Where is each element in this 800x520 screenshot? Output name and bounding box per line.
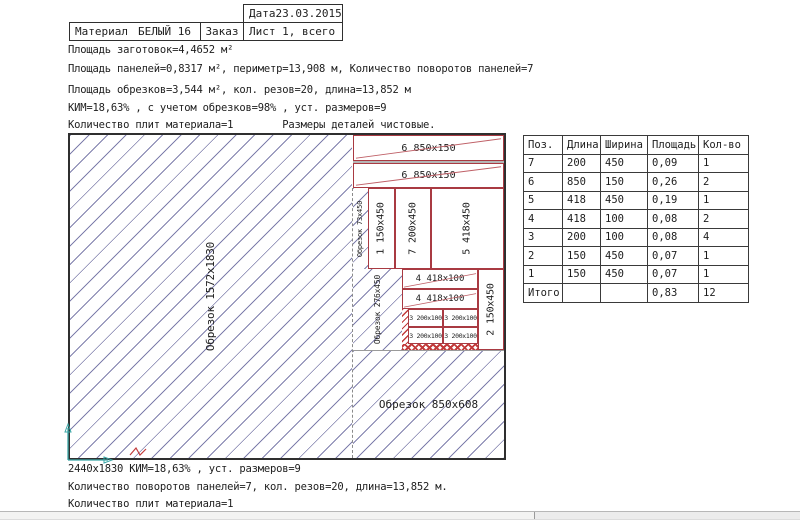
table-row: 44181000,082 xyxy=(524,210,749,229)
cut-list-table: Поз. Длина Ширина Площадь Кол-во 7200450… xyxy=(523,135,749,303)
cell: 100 xyxy=(601,210,648,229)
panel-label: 5 418x450 xyxy=(462,202,473,254)
cell: 150 xyxy=(563,247,601,266)
cell: 450 xyxy=(601,191,648,210)
cell: 4 xyxy=(524,210,563,229)
panel-850x150-a[interactable]: 6 850x150 xyxy=(353,135,504,161)
cell: Итого xyxy=(524,284,563,303)
panel-150x450-pos2[interactable]: 2 150x450 xyxy=(478,269,504,350)
cell: 1 xyxy=(524,265,563,284)
table-row: 68501500,262 xyxy=(524,173,749,192)
cell: 450 xyxy=(601,265,648,284)
panel-label: 6 850x150 xyxy=(401,143,455,154)
panel-418x450-pos5[interactable]: 5 418x450 xyxy=(431,188,504,269)
cell: 418 xyxy=(563,210,601,229)
cutting-plan-page: Дата 23.03.2015 Материал БЕЛЫЙ 16 Заказ … xyxy=(0,0,800,520)
cell: 6 xyxy=(524,173,563,192)
sheet-outline: Обрезок 1572x1830 6 850x150 6 850x150 Об… xyxy=(68,133,506,460)
panel-850x150-b[interactable]: 6 850x150 xyxy=(353,163,504,188)
cell: 1 xyxy=(699,154,749,173)
panel-label: 7 200x450 xyxy=(408,202,419,254)
col-header-area: Площадь xyxy=(648,136,699,155)
table-row: 72004500,091 xyxy=(524,154,749,173)
col-header-pos: Поз. xyxy=(524,136,563,155)
col-header-width: Ширина xyxy=(601,136,648,155)
cell: 0,19 xyxy=(648,191,699,210)
panel-label: 6 850x150 xyxy=(401,170,455,181)
date-label: Дата xyxy=(249,7,276,20)
offcut-label: Обрезок 276x450 xyxy=(373,275,382,344)
panel-200x100-pos3[interactable]: 3 200x100 xyxy=(408,309,443,327)
info-line: Площадь панелей=0,8317 м², периметр=13,9… xyxy=(68,63,533,75)
main-cut-dashed-line xyxy=(352,188,353,458)
info-line: Площадь обрезков=3,544 м², кол. резов=20… xyxy=(68,84,411,96)
sheet-cell: Лист 1, всего 1 xyxy=(243,22,343,41)
cell: 2 xyxy=(699,173,749,192)
panel-150x450-pos1[interactable]: 1 150x450 xyxy=(368,188,395,269)
cell: 7 xyxy=(524,154,563,173)
cell: 200 xyxy=(563,154,601,173)
cell: 0,26 xyxy=(648,173,699,192)
offcut-276x450-region[interactable]: Обрезок 276x450 xyxy=(353,269,402,350)
panel-label: 3 200x100 xyxy=(444,314,477,322)
table-row: 54184500,191 xyxy=(524,191,749,210)
panel-418x100-b[interactable]: 4 418x100 xyxy=(402,289,478,309)
material-label: Материал xyxy=(75,25,128,38)
material-cell: Материал БЕЛЫЙ 16 xyxy=(69,22,201,41)
panel-418x100-a[interactable]: 4 418x100 xyxy=(402,269,478,289)
table-header-row: Поз. Длина Ширина Площадь Кол-во xyxy=(524,136,749,155)
footer-line: 2440x1830 КИМ=18,63% , уст. размеров=9 xyxy=(68,463,301,475)
info-line: КИМ=18,63% , с учетом обрезков=98% , уст… xyxy=(68,102,386,114)
panel-label: 2 150x450 xyxy=(486,283,497,335)
table-row: 32001000,084 xyxy=(524,228,749,247)
table-row: 11504500,071 xyxy=(524,265,749,284)
table-row: 21504500,071 xyxy=(524,247,749,266)
panel-200x450-pos7[interactable]: 7 200x450 xyxy=(395,188,431,269)
cell: 1 xyxy=(699,191,749,210)
cell: 1 xyxy=(699,265,749,284)
date-cell: Дата 23.03.2015 xyxy=(243,4,343,23)
cell: 0,08 xyxy=(648,210,699,229)
panel-label: 4 418x100 xyxy=(416,274,465,284)
scrollbar-thumb[interactable] xyxy=(0,512,535,519)
cell: 200 xyxy=(563,228,601,247)
offcut-main-region[interactable]: Обрезок 1572x1830 xyxy=(70,135,352,458)
panel-label: 3 200x100 xyxy=(409,314,442,322)
cell: 418 xyxy=(563,191,601,210)
offcut-main-label: Обрезок 1572x1830 xyxy=(205,242,218,351)
col-header-qty: Кол-во xyxy=(699,136,749,155)
offcut-73x450-region[interactable]: Обрезок 73x450 xyxy=(353,188,368,269)
cell: 150 xyxy=(563,265,601,284)
sheet-label: Лист 1, всего 1 xyxy=(249,25,343,38)
cell: 2 xyxy=(699,210,749,229)
cell: 100 xyxy=(601,228,648,247)
cell: 450 xyxy=(601,247,648,266)
horizontal-scrollbar[interactable] xyxy=(0,511,800,520)
cell: 450 xyxy=(601,154,648,173)
material-value: БЕЛЫЙ 16 xyxy=(138,25,191,38)
cell: 0,09 xyxy=(648,154,699,173)
panel-label: 4 418x100 xyxy=(416,294,465,304)
cell: 150 xyxy=(601,173,648,192)
ucs-axis-icon xyxy=(58,418,158,468)
offcut-label: Обрезок 850x608 xyxy=(379,398,478,411)
cell: 4 xyxy=(699,228,749,247)
panel-label: 3 200x100 xyxy=(444,332,477,340)
cell: 2 xyxy=(524,247,563,266)
panel-label: 3 200x100 xyxy=(409,332,442,340)
order-cell: Заказ xyxy=(200,22,244,41)
panel-200x100-pos3[interactable]: 3 200x100 xyxy=(443,327,478,344)
footer-line: Количество плит материала=1 xyxy=(68,498,233,510)
cell: 0,83 xyxy=(648,284,699,303)
cell: 0,08 xyxy=(648,228,699,247)
cell: 5 xyxy=(524,191,563,210)
cell: 0,07 xyxy=(648,265,699,284)
cell: 12 xyxy=(699,284,749,303)
cell: 850 xyxy=(563,173,601,192)
panel-label: 1 150x450 xyxy=(376,202,387,254)
cell xyxy=(601,284,648,303)
info-line: Количество плит материала=1 Размеры дета… xyxy=(68,119,435,131)
cell: 1 xyxy=(699,247,749,266)
panel-200x100-pos3[interactable]: 3 200x100 xyxy=(408,327,443,344)
info-line: Площадь заготовок=4,4652 м² xyxy=(68,44,233,56)
cell: 3 xyxy=(524,228,563,247)
col-header-length: Длина xyxy=(563,136,601,155)
cell: 0,07 xyxy=(648,247,699,266)
table-total-row: Итого0,8312 xyxy=(524,284,749,303)
date-value: 23.03.2015 xyxy=(276,7,342,20)
order-label: Заказ xyxy=(205,25,238,38)
cell xyxy=(563,284,601,303)
panel-200x100-pos3[interactable]: 3 200x100 xyxy=(443,309,478,327)
footer-line: Количество поворотов панелей=7, кол. рез… xyxy=(68,481,448,493)
offcut-850x608-region[interactable]: Обрезок 850x608 xyxy=(353,350,504,458)
offcut-label: Обрезок 73x450 xyxy=(357,200,365,256)
